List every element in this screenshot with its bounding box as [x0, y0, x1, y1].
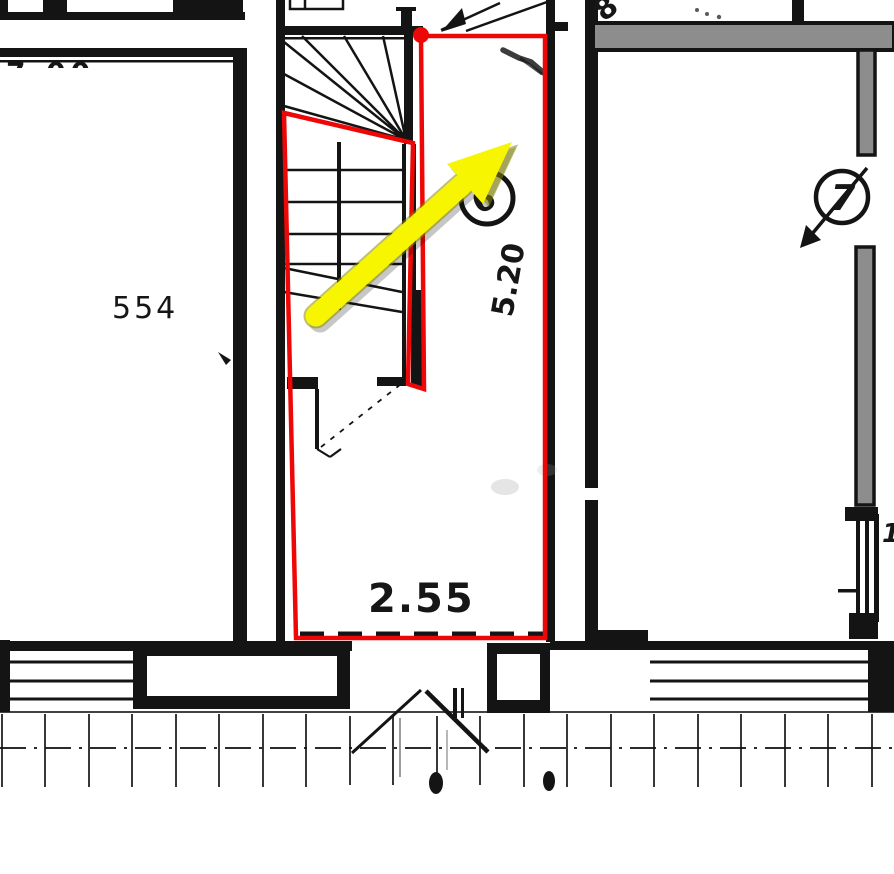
door-tick	[218, 352, 231, 365]
section-lines	[0, 662, 872, 699]
room-554-label: 554	[112, 291, 178, 326]
door-leaf	[315, 389, 319, 449]
clipped-dimension-text: 7.00	[6, 56, 95, 89]
floor-plan-canvas: 7 6 554 2.55 5.20 8 1. 7.00	[0, 0, 894, 874]
gray-wall-right-lower	[856, 247, 874, 505]
clipped-dimension-top-left: 7.00	[6, 56, 95, 89]
plan-linework	[0, 0, 894, 794]
gray-wall-top	[593, 23, 894, 50]
winder-treads-top	[284, 36, 406, 140]
eraser-smudge	[491, 479, 519, 495]
circled-right-unit-number: 7	[830, 178, 855, 219]
gray-wall-right-upper	[858, 50, 875, 155]
upper-landing-rail	[290, 0, 343, 9]
room-554-walls	[0, 48, 247, 642]
door-swing	[321, 384, 401, 447]
balcony-door-swing	[352, 690, 421, 753]
gray-wall-highlights	[593, 23, 894, 505]
unit-7-direction-marker: 7	[800, 168, 868, 248]
separating-walls	[546, 0, 804, 642]
floor-plan-screenshot: 7 6 554 2.55 5.20 8 1. 7.00	[0, 0, 894, 874]
width-dimension-label: 2.55	[368, 576, 475, 622]
depth-dimension-label: 5.20	[485, 240, 532, 319]
upper-room-walls	[0, 0, 245, 20]
window-symbol	[838, 507, 879, 639]
stair-direction-arrow-icon	[441, 2, 547, 32]
pillar-right	[868, 641, 894, 712]
outline-anchor-dot	[413, 27, 429, 43]
clipped-dimension-right-edge: 1.	[882, 519, 894, 549]
